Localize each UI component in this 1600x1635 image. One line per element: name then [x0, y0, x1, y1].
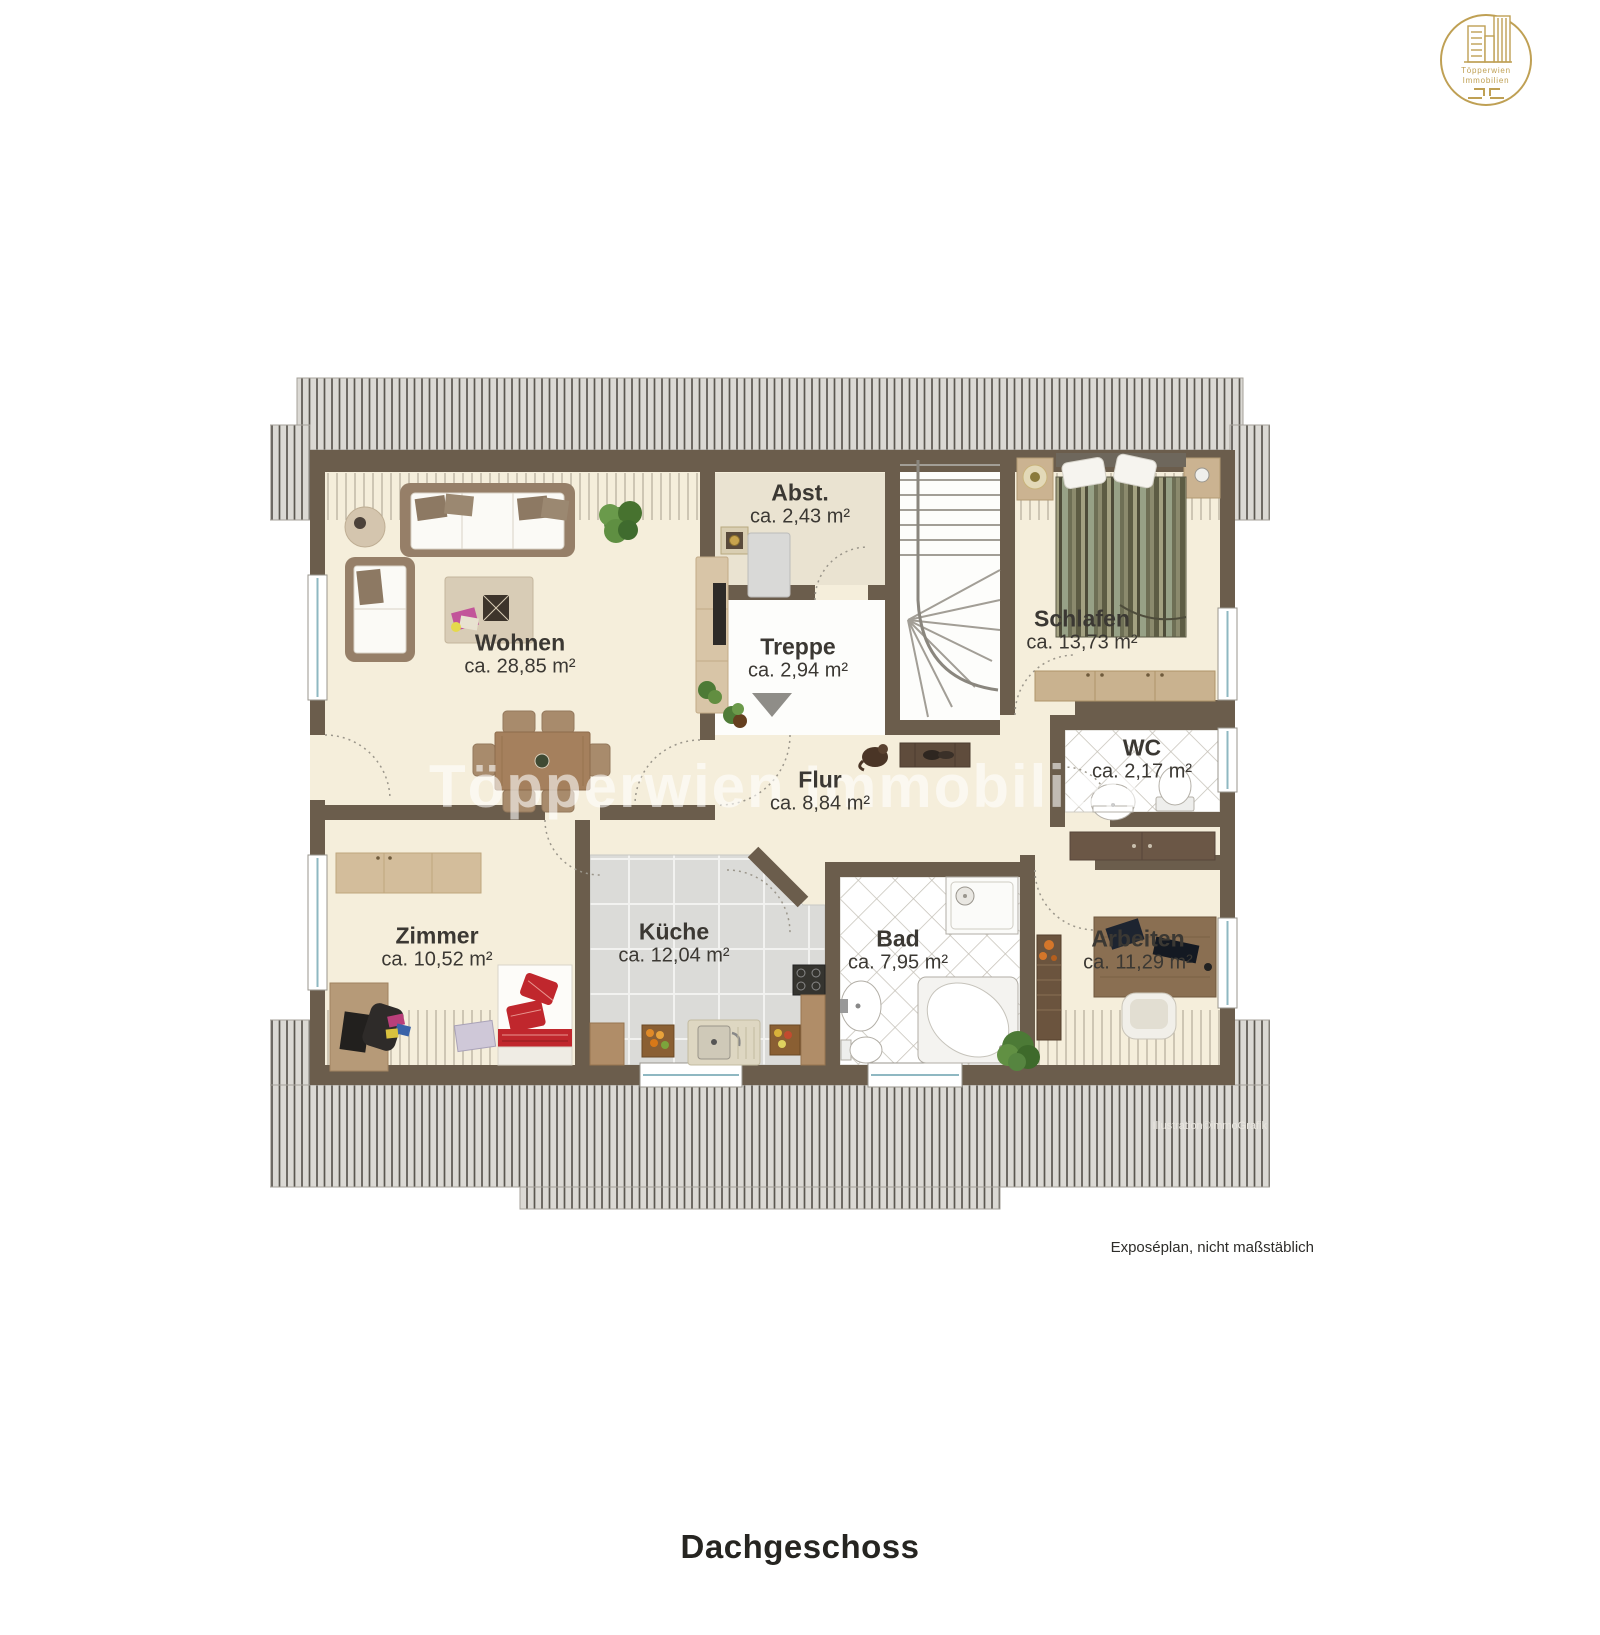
tv-sideboard	[696, 557, 728, 713]
room-label-zimmer: Zimmer ca. 10,52 m²	[381, 922, 492, 971]
room-label-wc: WC ca. 2,17 m²	[1092, 734, 1192, 783]
fruit-crate	[642, 1025, 674, 1057]
room-area: ca. 13,73 m²	[1026, 632, 1137, 655]
single-bed	[498, 965, 572, 1065]
room-name: WC	[1092, 734, 1192, 760]
bath-sink	[840, 981, 881, 1031]
room-name: Zimmer	[381, 922, 492, 948]
side-table	[345, 507, 385, 547]
room-area: ca. 2,43 m²	[750, 506, 850, 529]
room-label-flur: Flur ca. 8,84 m²	[770, 766, 870, 815]
room-area: ca. 11,29 m²	[1083, 952, 1193, 975]
window	[308, 575, 327, 700]
disclaimer-note: Exposéplan, nicht maßstäblich	[1111, 1239, 1314, 1256]
company-logo: Töpperwien Immobilien	[1438, 10, 1534, 110]
wardrobe	[1035, 671, 1215, 701]
room-label-arbeiten: Arbeiten ca. 11,29 m²	[1083, 925, 1193, 974]
room-name: Bad	[848, 925, 948, 951]
room-name: Schlafen	[1026, 605, 1137, 631]
room-label-schlafen: Schlafen ca. 13,73 m²	[1026, 605, 1137, 654]
logo-text-line2: Immobilien	[1463, 76, 1510, 85]
room-label-kueche: Küche ca. 12,04 m²	[618, 918, 729, 967]
room-name: Wohnen	[464, 629, 575, 655]
window	[640, 1063, 742, 1087]
kitchen-counter	[801, 995, 825, 1065]
room-area: ca. 12,04 m²	[618, 945, 729, 968]
veggie-crate	[770, 1025, 800, 1055]
dresser	[1070, 832, 1215, 860]
sofa-large	[400, 483, 575, 557]
window	[308, 855, 327, 990]
logo-buildings-icon	[1464, 16, 1512, 62]
nightstand-right	[1184, 458, 1220, 498]
bath-toilet	[841, 1037, 882, 1063]
room-label-abst: Abst. ca. 2,43 m²	[750, 479, 850, 528]
logo-text-line1: Töpperwien	[1461, 66, 1511, 75]
sofa-small	[345, 557, 415, 662]
kitchen-sink	[688, 1020, 760, 1065]
nightstand-left	[1017, 458, 1053, 500]
room-name: Flur	[770, 766, 870, 792]
page-title: Dachgeschoss	[0, 1528, 1600, 1566]
sideboard	[336, 853, 481, 893]
room-label-treppe: Treppe ca. 2,94 m²	[748, 633, 848, 682]
room-name: Treppe	[748, 633, 848, 659]
kitchen-step	[590, 1023, 624, 1065]
room-area: ca. 2,17 m²	[1092, 761, 1192, 784]
abst-cabinet	[748, 533, 790, 597]
room-area: ca. 7,95 m²	[848, 952, 948, 975]
room-name: Abst.	[750, 479, 850, 505]
window	[1218, 608, 1237, 700]
room-name: Küche	[618, 918, 729, 944]
abst-sink-unit	[721, 527, 748, 554]
room-area: ca. 10,52 m²	[381, 949, 492, 972]
room-area: ca. 8,84 m²	[770, 793, 870, 816]
illustration-credit: Illustration©immoGrafik	[1153, 1120, 1267, 1132]
deco-rug	[454, 1020, 495, 1051]
office-chair	[1122, 993, 1176, 1039]
room-area: ca. 28,85 m²	[464, 656, 575, 679]
shelf-unit	[1037, 935, 1061, 1040]
stair-shaft-floor	[900, 450, 1000, 720]
room-label-wohnen: Wohnen ca. 28,85 m²	[464, 629, 575, 678]
room-label-bad: Bad ca. 7,95 m²	[848, 925, 948, 974]
floorplan-page: Töpperwien Immobilien	[0, 0, 1600, 1635]
window	[1218, 918, 1237, 1008]
logo-base-mark	[1468, 89, 1504, 98]
room-name: Arbeiten	[1083, 925, 1193, 951]
window	[868, 1063, 962, 1087]
shower	[946, 877, 1018, 934]
room-area: ca. 2,94 m²	[748, 660, 848, 683]
stove	[793, 965, 825, 995]
